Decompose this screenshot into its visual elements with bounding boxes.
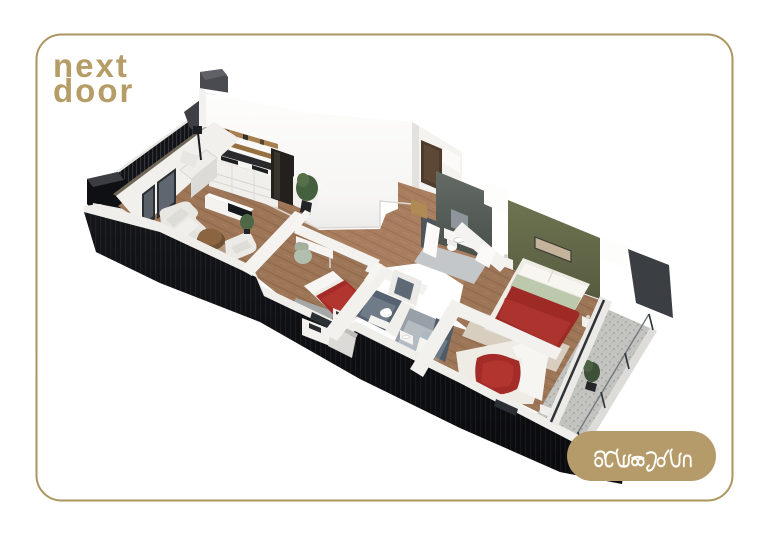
svg-text:door: door	[53, 72, 134, 109]
